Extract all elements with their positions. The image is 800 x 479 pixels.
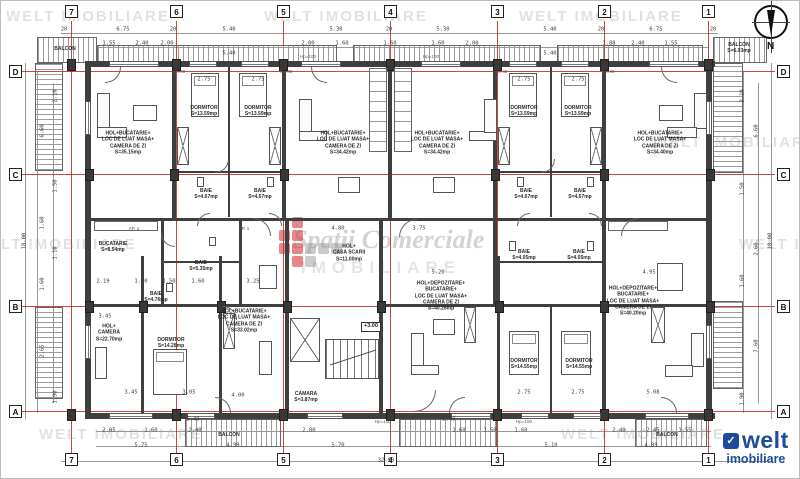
dim-label: 1.60 bbox=[335, 41, 348, 47]
wall bbox=[550, 304, 552, 414]
dim-label: 7.60 bbox=[754, 339, 760, 352]
wall bbox=[172, 61, 176, 221]
dim-label: 1.60 bbox=[514, 428, 527, 434]
dim-label: 6.60 bbox=[754, 124, 760, 137]
dim-label: 2.05 bbox=[102, 428, 115, 434]
door-swing bbox=[215, 397, 231, 413]
dim-label: 5.10 bbox=[544, 443, 557, 449]
wall bbox=[499, 261, 604, 263]
wardrobe bbox=[269, 127, 281, 165]
room-label: BUCATARIE S=8.54mp bbox=[99, 241, 128, 254]
north-compass-icon bbox=[767, 10, 775, 36]
sofa bbox=[411, 333, 424, 367]
window bbox=[85, 325, 91, 359]
dim-label: 3.05 bbox=[182, 390, 195, 396]
table bbox=[133, 105, 157, 121]
dim-label: 18.00 bbox=[22, 233, 28, 250]
room-label: BAIE S=4.05mp bbox=[567, 249, 591, 262]
dim-label: 2.00 bbox=[301, 41, 314, 47]
note-label: hp=40 bbox=[495, 70, 508, 75]
dim-label: 18.00 bbox=[768, 233, 774, 250]
room-label: DORMITOR S=14.55mp bbox=[565, 358, 592, 371]
room-label: DORMITOR S=13.59mp bbox=[190, 105, 217, 118]
door-swing bbox=[449, 397, 465, 413]
room-label: HOL+BUCATARIE+ LOC DE LUAT MASA+ CAMERA … bbox=[634, 131, 686, 156]
dim-label: 1.55 bbox=[664, 41, 677, 47]
note-label: hp=40 bbox=[602, 70, 615, 75]
dim-label: 2.40 bbox=[135, 41, 148, 47]
dim-label: 1.90 bbox=[740, 392, 746, 405]
brand-subtitle: imobiliare bbox=[726, 453, 785, 466]
window bbox=[509, 61, 537, 67]
dim-label: 5.40 bbox=[442, 417, 455, 423]
dim-label: 1.55 bbox=[102, 41, 115, 47]
sofa bbox=[299, 99, 312, 133]
dim-label: 1.55 bbox=[678, 428, 691, 434]
pilaster bbox=[706, 169, 715, 181]
brand-name: welt bbox=[742, 429, 789, 452]
window bbox=[451, 413, 491, 419]
grid-bubble-3: 3 bbox=[491, 5, 504, 18]
note-label: Hp=100 bbox=[516, 420, 532, 425]
balcony-hatch bbox=[713, 63, 743, 173]
balcony-hatch bbox=[35, 63, 63, 171]
grid-bubble-D: D bbox=[777, 65, 790, 78]
door-swing bbox=[589, 213, 602, 226]
wall bbox=[493, 61, 497, 221]
room-label: BAIE S=4.67mp bbox=[568, 188, 592, 201]
dim-label: 5.75 bbox=[134, 443, 147, 449]
dim-label: 5.08 bbox=[646, 390, 659, 396]
room-label: BAIE S=4.67mp bbox=[248, 188, 272, 201]
sofa bbox=[411, 365, 439, 375]
grid-bubble-B: B bbox=[777, 300, 790, 313]
watermark-text: WELT IMOBILIARE bbox=[6, 9, 170, 24]
dim-label: 2.00 bbox=[160, 41, 173, 47]
grid-bubble-A: A bbox=[9, 405, 22, 418]
dim-label: 1.50 bbox=[740, 182, 746, 195]
dim-label: 1.60 bbox=[383, 41, 396, 47]
pilaster bbox=[85, 301, 94, 313]
room-label: HOL+BUCATARIE+ LOC DE LUAT MASA+ CAMERA … bbox=[317, 131, 369, 156]
room-label: HOL+DEPOZITARE+ BUCATARIE+ LOC DE LUAT M… bbox=[607, 285, 659, 316]
grid-bubble-1: 1 bbox=[702, 5, 715, 18]
wall bbox=[228, 67, 230, 217]
dim-label: 6.75 bbox=[116, 27, 129, 33]
dim-label: 2.00 bbox=[465, 41, 478, 47]
door-swing bbox=[414, 390, 436, 412]
dimension-line bbox=[743, 71, 744, 413]
pilaster bbox=[170, 169, 179, 181]
elevator-shaft bbox=[290, 318, 320, 362]
dim-label: 20 bbox=[170, 27, 177, 33]
sofa bbox=[691, 333, 704, 367]
table bbox=[659, 105, 683, 121]
dim-label: 2.75 bbox=[517, 390, 530, 396]
pilaster bbox=[704, 59, 713, 71]
room-label: DORMITOR S=13.59mp bbox=[564, 105, 591, 118]
north-label: N bbox=[767, 42, 774, 52]
floor-plan-canvas: WELT IMOBILIAREWELT IMOBILIAREWELT IMOBI… bbox=[0, 0, 800, 479]
dim-label: 4.99 bbox=[226, 443, 239, 449]
wall bbox=[87, 61, 715, 67]
kitchen-counter bbox=[608, 221, 668, 231]
grid-bubble-7: 7 bbox=[65, 453, 78, 466]
dim-label: 1.50 bbox=[162, 279, 175, 285]
sofa bbox=[97, 93, 110, 129]
dim-label: 2.10 bbox=[53, 89, 59, 102]
room-label: HOL+DEPOZITARE+ BUCATARIE+ LOC DE LUAT M… bbox=[415, 280, 467, 311]
dim-label: 5.30 bbox=[329, 27, 342, 33]
dim-label: 5.40 bbox=[186, 417, 199, 423]
wall bbox=[282, 61, 286, 221]
grid-bubble-A: A bbox=[777, 405, 790, 418]
table bbox=[433, 319, 455, 335]
dim-label: 5.30 bbox=[436, 27, 449, 33]
welt-imobiliare-logo: ✓weltimobiliare bbox=[723, 429, 789, 466]
dim-label: 2.75 bbox=[571, 77, 584, 83]
grid-bubble-2: 2 bbox=[598, 5, 611, 18]
room-label: HOL+ CAMERA S=22.70mp bbox=[96, 324, 122, 343]
toilet bbox=[517, 177, 524, 187]
sofa bbox=[694, 93, 707, 129]
window bbox=[706, 325, 712, 359]
grid-bubble-4: 4 bbox=[384, 5, 397, 18]
room-label: HOL+BUCATARIE+ LOC DE LUAT MASA+ CAMERA … bbox=[102, 131, 154, 156]
grid-bubble-2: 2 bbox=[598, 453, 611, 466]
pilaster bbox=[704, 409, 713, 421]
grid-bubble-6: 6 bbox=[170, 5, 183, 18]
pilaster bbox=[493, 409, 502, 421]
room-label: BAIE S=4.05mp bbox=[512, 249, 536, 262]
door-swing bbox=[661, 397, 677, 413]
note-label: Hp=100 bbox=[423, 55, 439, 60]
door-swing bbox=[517, 213, 530, 226]
wall bbox=[87, 413, 715, 419]
dim-label: 20 bbox=[386, 27, 393, 33]
dim-label: 2.10 bbox=[740, 89, 746, 102]
wardrobe bbox=[177, 127, 189, 165]
grid-bubble-1: 1 bbox=[702, 453, 715, 466]
wall bbox=[91, 304, 287, 307]
grid-bubble-3: 3 bbox=[491, 453, 504, 466]
window bbox=[241, 61, 269, 67]
window bbox=[573, 413, 601, 419]
pilaster bbox=[280, 169, 289, 181]
grid-bubble-7: 7 bbox=[65, 5, 78, 18]
window bbox=[645, 413, 689, 419]
watermark-logo-gray-square bbox=[305, 256, 316, 267]
sofa bbox=[484, 99, 497, 133]
dim-label: 2.19 bbox=[96, 279, 109, 285]
room-label: BALCON bbox=[54, 46, 75, 52]
watermark-logo-gray-square bbox=[305, 243, 316, 254]
dim-label: 1.60 bbox=[40, 277, 46, 290]
dim-label: 5.40 bbox=[543, 51, 556, 57]
dim-label: 2.75 bbox=[197, 77, 210, 83]
room-label: BALCON S=6.03mp bbox=[727, 42, 751, 55]
grid-bubble-5: 5 bbox=[277, 453, 290, 466]
room-label: HOL+BUCATARIE+ LOC DE LUAT MASA+ CAMERA … bbox=[411, 131, 463, 156]
dim-label: 3.25 bbox=[246, 279, 259, 285]
kitchen-counter bbox=[369, 68, 387, 152]
note-label: hp=40 bbox=[280, 70, 293, 75]
dim-label: 2.40 bbox=[188, 428, 201, 434]
door-swing bbox=[105, 67, 121, 83]
door-swing bbox=[197, 213, 210, 226]
note-label: Hp=100 bbox=[300, 55, 316, 60]
sofa bbox=[259, 341, 272, 375]
grid-bubble-5: 5 bbox=[277, 5, 290, 18]
dim-label: 4.80 bbox=[331, 226, 344, 232]
grid-axis-line-C bbox=[19, 174, 775, 175]
room-label: BAIE S=4.76mp bbox=[144, 291, 168, 304]
wall bbox=[497, 256, 500, 414]
dim-label: 5.20 bbox=[431, 270, 444, 276]
wardrobe bbox=[464, 307, 476, 343]
dim-label: 6.60 bbox=[40, 124, 46, 137]
dim-label: 5.70 bbox=[331, 443, 344, 449]
pilaster bbox=[85, 169, 94, 181]
wall bbox=[219, 256, 222, 414]
pilaster bbox=[600, 409, 609, 421]
dimension-line bbox=[61, 461, 773, 462]
dim-label: 4.99 bbox=[644, 443, 657, 449]
room-label: DORMITOR S=13.59mp bbox=[510, 105, 537, 118]
dim-label: 2.75 bbox=[517, 77, 530, 83]
dim-label: 5.40 bbox=[222, 51, 235, 57]
kitchen-counter bbox=[94, 221, 158, 231]
pilaster bbox=[600, 169, 609, 181]
door-swing bbox=[269, 213, 282, 226]
dim-label: 4.95 bbox=[642, 270, 655, 276]
room-label: BALCON bbox=[218, 432, 239, 438]
room-label: DORMITOR S=14.28mp bbox=[157, 337, 184, 350]
room-label: HOL+BUCATARIE+ LOC DE LUAT MASA+ CAMERA … bbox=[218, 309, 270, 334]
pilaster bbox=[377, 301, 386, 313]
balcony-hatch bbox=[399, 419, 497, 447]
pilaster bbox=[706, 301, 715, 313]
pilaster bbox=[495, 301, 504, 313]
table bbox=[259, 265, 277, 289]
dim-label: 2.65 bbox=[40, 344, 46, 357]
dim-label: 32.90 bbox=[378, 458, 395, 464]
window bbox=[109, 413, 153, 419]
dim-label: 1.60 bbox=[144, 428, 157, 434]
dim-label: 3.45 bbox=[98, 314, 111, 320]
dim-label: 2.40 bbox=[631, 41, 644, 47]
pilaster bbox=[67, 59, 76, 71]
dim-label: 1.60 bbox=[431, 41, 444, 47]
door-swing bbox=[661, 67, 677, 83]
window bbox=[189, 61, 217, 67]
room-label: DORMITOR S=13.59mp bbox=[244, 105, 271, 118]
room-label: BAIE S=4.67mp bbox=[514, 188, 538, 201]
dim-label: 2.45 bbox=[646, 428, 659, 434]
kitchen-counter bbox=[394, 68, 412, 152]
grid-axis-line-7 bbox=[71, 21, 72, 458]
dim-label: 20 bbox=[710, 27, 717, 33]
dim-label: 2.40 bbox=[612, 428, 625, 434]
dim-label: 1.60 bbox=[40, 216, 46, 229]
dim-label: 3.75 bbox=[412, 226, 425, 232]
grid-bubble-D: D bbox=[9, 65, 22, 78]
grid-bubble-B: B bbox=[9, 300, 22, 313]
dim-label: 5.40 bbox=[222, 27, 235, 33]
table bbox=[338, 177, 360, 193]
window bbox=[85, 101, 91, 135]
wardrobe bbox=[498, 127, 510, 165]
note-label: Hp=100 bbox=[375, 420, 391, 425]
bed bbox=[153, 349, 187, 395]
dim-label: 1.50 bbox=[53, 179, 59, 192]
wall bbox=[550, 67, 552, 217]
room-label: HOL+ CASA SCARII S=11.00mp bbox=[333, 244, 365, 263]
wall bbox=[493, 171, 606, 173]
grid-bubble-C: C bbox=[9, 168, 22, 181]
room-label: BAIE S=4.67mp bbox=[194, 188, 218, 201]
dim-label: 1.60 bbox=[191, 279, 204, 285]
dim-label: 1.90 bbox=[53, 390, 59, 403]
wall bbox=[379, 218, 383, 414]
sofa bbox=[95, 347, 107, 379]
pilaster bbox=[67, 409, 76, 421]
watermark-text: WELT IMOBILIARE bbox=[39, 427, 203, 442]
watermark-logo-red-square bbox=[292, 243, 303, 254]
room-label: CAMARA S=3.87mp bbox=[294, 391, 318, 404]
dim-label: 1.10 bbox=[134, 279, 147, 285]
toilet bbox=[197, 177, 204, 187]
dim-label: 2.60 bbox=[754, 242, 760, 255]
pilaster bbox=[491, 169, 500, 181]
note-label: hp=40 bbox=[173, 70, 186, 75]
grid-bubble-C: C bbox=[777, 168, 790, 181]
dim-label: 20 bbox=[598, 27, 605, 33]
toilet bbox=[587, 177, 594, 187]
note-label: AP. 2 bbox=[129, 227, 139, 232]
pilaster bbox=[283, 301, 292, 313]
watermark-logo-gray-square bbox=[318, 243, 329, 254]
brand-flag-icon: ✓ bbox=[723, 433, 739, 449]
pilaster bbox=[172, 409, 181, 421]
door-swing bbox=[311, 67, 327, 83]
toilet bbox=[209, 237, 216, 246]
grid-bubble-6: 6 bbox=[170, 453, 183, 466]
room-label: DORMITOR S=14.55mp bbox=[510, 358, 537, 371]
dim-label: 1.50 bbox=[483, 428, 496, 434]
window bbox=[421, 61, 461, 67]
balcony-hatch bbox=[713, 301, 743, 389]
wall bbox=[285, 218, 289, 414]
table bbox=[657, 263, 683, 291]
dim-label: 4.00 bbox=[231, 393, 244, 399]
table bbox=[433, 177, 455, 193]
dim-label: 2.75 bbox=[251, 77, 264, 83]
dim-label: 6.75 bbox=[649, 27, 662, 33]
dim-label: 1.10 bbox=[53, 246, 59, 259]
watermark-logo-red-square bbox=[292, 256, 303, 267]
toilet bbox=[267, 177, 274, 187]
sofa bbox=[665, 365, 693, 377]
dim-label: 1.60 bbox=[740, 274, 746, 287]
wall bbox=[602, 61, 606, 221]
dim-label: 20 bbox=[61, 27, 68, 33]
level-marker: +3.00 bbox=[361, 322, 381, 332]
window bbox=[561, 61, 589, 67]
wall bbox=[172, 171, 286, 173]
window bbox=[307, 413, 343, 419]
dim-label: 2.80 bbox=[302, 428, 315, 434]
dim-label: 1.88 bbox=[602, 41, 615, 47]
dim-label: 3.45 bbox=[124, 390, 137, 396]
dim-label: 5.40 bbox=[543, 27, 556, 33]
pilaster bbox=[279, 409, 288, 421]
watermark-logo-red-square bbox=[292, 230, 303, 241]
note-label: AP. 1 bbox=[239, 227, 249, 232]
dim-label: 1.60 bbox=[452, 428, 465, 434]
staircase bbox=[325, 339, 379, 379]
room-label: BAIE S=5.35mp bbox=[189, 260, 213, 273]
wall bbox=[602, 218, 606, 414]
dim-label: 2.75 bbox=[571, 390, 584, 396]
wall bbox=[388, 61, 392, 221]
wardrobe bbox=[590, 127, 602, 165]
